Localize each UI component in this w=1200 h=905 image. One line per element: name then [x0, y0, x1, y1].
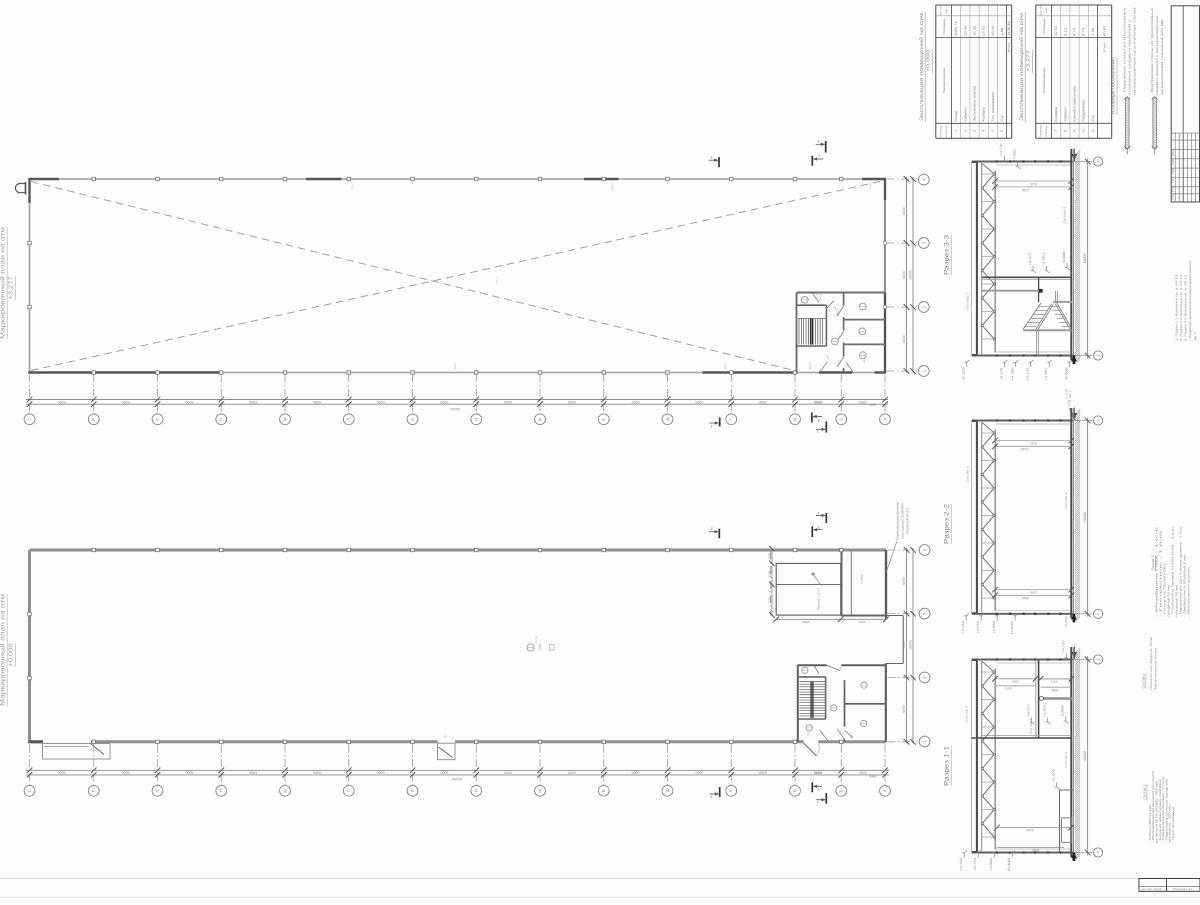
svg-text:2: 2 — [710, 155, 712, 159]
svg-text:1080.74: 1080.74 — [954, 21, 958, 36]
svg-text:6000: 6000 — [58, 771, 66, 775]
svg-text:1500: 1500 — [768, 552, 772, 559]
svg-text:+1.200: +1.200 — [1052, 769, 1056, 782]
svg-text:3: 3 — [818, 154, 820, 158]
svg-text:0.000: 0.000 — [1064, 615, 1068, 627]
svg-text:6000: 6000 — [504, 400, 512, 404]
svg-text:Кол-во: Кол-во — [1039, 5, 1042, 16]
svg-text:6000: 6000 — [759, 400, 767, 404]
svg-text:13.49: 13.49 — [991, 25, 995, 36]
svg-text:д-5: д-5 — [821, 731, 825, 736]
svg-text:Раздевалка: Раздевалка — [1082, 100, 1086, 121]
svg-text:д-2: д-2 — [806, 731, 810, 736]
svg-text:2150: 2150 — [768, 596, 772, 603]
svg-text:4471: 4471 — [1050, 680, 1057, 684]
svg-text:18000: 18000 — [1083, 751, 1087, 761]
svg-text:2298: 2298 — [1030, 590, 1038, 594]
svg-text:Р: Р — [91, 789, 96, 792]
svg-text:Дата: Дата — [1172, 149, 1175, 156]
svg-text:8.74: 8.74 — [1082, 27, 1086, 36]
svg-text:д-5: д-5 — [825, 354, 829, 359]
svg-text:6000: 6000 — [902, 335, 906, 343]
svg-text:11: 11 — [1091, 129, 1095, 133]
svg-text:д-3: д-3 — [815, 293, 819, 298]
svg-text:д-4: д-4 — [837, 359, 841, 364]
svg-text:1508: 1508 — [1051, 688, 1058, 692]
svg-text:6: 6 — [1000, 130, 1004, 132]
svg-text:Дн-2: Дн-2 — [453, 362, 457, 369]
svg-text:Д: Д — [665, 418, 670, 421]
svg-text:Комната персонала: Комната персонала — [1073, 86, 1077, 122]
svg-text:Маркировочный план на отм: Маркировочный план на отм — [0, 227, 7, 339]
svg-text:6575: 6575 — [1004, 686, 1011, 690]
svg-text:-0.006: -0.006 — [1065, 367, 1069, 380]
svg-text:Состав 3: Состав 3 — [965, 706, 969, 722]
svg-text:С/у: С/у — [1000, 115, 1004, 122]
svg-text:8: 8 — [1063, 130, 1067, 132]
svg-text:д-4: д-4 — [837, 308, 841, 313]
svg-text:18000: 18000 — [1083, 512, 1087, 522]
svg-text:д-5: д-5 — [838, 730, 842, 735]
svg-text:6000: 6000 — [313, 400, 321, 404]
svg-text:+4.770: +4.770 — [976, 621, 980, 634]
svg-text:9.12: 9.12 — [1063, 27, 1067, 36]
svg-text:+4.580: +4.580 — [989, 858, 993, 871]
svg-text:Коридор: Коридор — [982, 107, 986, 122]
svg-text:4. Спецификация заполнения око: 4. Спецификация заполнения оконных и две… — [1188, 261, 1192, 341]
svg-text:Е: Е — [601, 418, 606, 421]
svg-text:6000: 6000 — [902, 705, 906, 713]
svg-text:- Металлические прогоны: - Металлические прогоны — [1186, 567, 1190, 617]
svg-text:Система 1: Система 1 — [1063, 206, 1067, 223]
svg-text:6000: 6000 — [504, 771, 512, 775]
svg-text:18000: 18000 — [1083, 254, 1087, 264]
svg-text:Вр-1: Вр-1 — [495, 277, 499, 284]
svg-text:- Наружные стены из трехслойны: - Наружные стены из трехслойных — [1123, 7, 1127, 96]
svg-text:В: В — [793, 418, 798, 421]
svg-text:3: 3 — [818, 418, 820, 422]
svg-text:- Внутренние стены из трехслой: - Внутренние стены из трехслойных — [1150, 7, 1154, 96]
svg-text:Итого: Итого — [1007, 42, 1011, 52]
svg-text:13.49: 13.49 — [963, 25, 967, 36]
svg-text:6000: 6000 — [122, 400, 130, 404]
svg-text:Кол: Кол — [1172, 185, 1175, 192]
svg-text:Б: Б — [839, 418, 844, 421]
svg-text:6000: 6000 — [632, 771, 640, 775]
svg-text:С: С — [27, 418, 32, 421]
svg-text:+0.000: +0.000 — [926, 50, 932, 72]
svg-text:4000: 4000 — [814, 771, 822, 775]
svg-text:Склад: Склад — [954, 111, 958, 122]
svg-text:+3.277: +3.277 — [8, 276, 15, 300]
svg-text:наполнителем толщиной 100 мм: наполнителем толщиной 100 мм — [1160, 20, 1164, 96]
svg-text:- Грунт основания: - Грунт основания — [1171, 806, 1175, 843]
svg-text:Д: Д — [665, 789, 670, 792]
svg-text:0.000: 0.000 — [1061, 705, 1065, 716]
svg-text:+0.000: +0.000 — [8, 643, 15, 667]
svg-text:3. Разрез 3-3 Выполнен см. л.: 3. Разрез 3-3 Выполнен см. л. АР-13 — [1184, 275, 1188, 341]
svg-text:Герметизация проема: Герметизация проема — [896, 502, 900, 540]
svg-text:шт.: шт. — [945, 7, 948, 14]
svg-text:1-1: 1-1 — [834, 668, 838, 673]
svg-text:9: 9 — [1073, 130, 1077, 132]
svg-text:Кабинет: Кабинет — [963, 106, 967, 121]
svg-text:П: П — [155, 418, 160, 421]
svg-text:Люк-лаз 1.1х1.1: Люк-лаз 1.1х1.1 — [817, 588, 821, 610]
svg-text:2: 2 — [710, 424, 712, 428]
svg-text:6000: 6000 — [902, 271, 906, 279]
svg-text:Площадь: Площадь — [942, 18, 946, 36]
svg-text:- Металлическая балка: - Металлическая балка — [1153, 648, 1157, 692]
svg-text:С: С — [27, 789, 32, 792]
svg-text:2: 2 — [710, 794, 712, 798]
svg-text:Условные обозначения: Условные обозначения — [1111, 57, 1117, 115]
svg-text:Итого: Итого — [1103, 42, 1107, 52]
svg-text:М: М — [283, 417, 288, 421]
svg-text:6000: 6000 — [440, 400, 448, 404]
svg-text:7560: 7560 — [1012, 680, 1019, 684]
svg-text:7: 7 — [1054, 130, 1058, 132]
svg-text:д-4: д-4 — [837, 333, 841, 338]
svg-text:4: 4 — [982, 130, 986, 132]
svg-text:+4.500: +4.500 — [1013, 149, 1017, 161]
svg-text:Состав 5: Состав 5 — [1064, 752, 1068, 768]
svg-text:Б: Б — [839, 789, 844, 792]
svg-text:3549: 3549 — [1030, 182, 1038, 186]
svg-text:6000: 6000 — [802, 620, 809, 624]
svg-text:2000: 2000 — [768, 570, 772, 577]
svg-text:10: 10 — [1082, 129, 1086, 133]
svg-text:1. Разрез 1-1 Выполнен см. л.: 1. Разрез 1-1 Выполнен см. л. АР-13 — [1174, 275, 1178, 341]
svg-text:3: 3 — [817, 525, 819, 529]
svg-text:6000: 6000 — [58, 400, 66, 404]
svg-text:до der воля: до der воля — [1142, 887, 1162, 891]
svg-text:Лестничная клетка: Лестничная клетка — [973, 86, 977, 122]
svg-text:6000: 6000 — [902, 577, 906, 585]
svg-text:М: М — [283, 789, 288, 793]
svg-text:Номер: Номер — [1039, 124, 1042, 137]
svg-text:6000: 6000 — [377, 400, 385, 404]
svg-text:6000: 6000 — [568, 771, 576, 775]
svg-text:Формат А1: Формат А1 — [1173, 887, 1193, 891]
svg-text:Дн-4: Дн-4 — [862, 355, 866, 362]
svg-text:Состав 2: Состав 2 — [1141, 673, 1145, 688]
svg-text:80000: 80000 — [450, 407, 460, 411]
svg-text:Nдок: Nдок — [1172, 167, 1175, 174]
svg-text:5: 5 — [991, 130, 995, 132]
svg-text:Е: Е — [601, 789, 606, 792]
svg-text:К: К — [410, 418, 415, 421]
svg-text:6000: 6000 — [902, 207, 906, 215]
svg-text:9128: 9128 — [1021, 447, 1029, 451]
svg-text:18000: 18000 — [909, 640, 913, 650]
svg-text:+0.176: +0.176 — [1000, 367, 1004, 380]
svg-text:+4.770: +4.770 — [973, 858, 977, 871]
svg-text:8000: 8000 — [869, 403, 876, 407]
svg-text:Состав 1: Состав 1 — [1064, 492, 1068, 508]
svg-text:+4.770: +4.770 — [1068, 400, 1072, 412]
svg-text:2: 2 — [963, 130, 967, 132]
svg-text:40.62: 40.62 — [1103, 25, 1107, 36]
svg-text:2298: 2298 — [1022, 188, 1030, 192]
svg-text:+1.651: +1.651 — [1043, 704, 1047, 717]
svg-text:Дн-2: Дн-2 — [610, 183, 614, 190]
svg-text:А: А — [883, 789, 888, 792]
svg-text:С/у: С/у — [1091, 115, 1095, 122]
svg-text:4000: 4000 — [859, 771, 867, 775]
svg-text:1436.39: 1436.39 — [1007, 21, 1011, 36]
svg-text:Дн-2: Дн-2 — [723, 362, 727, 369]
svg-text:Площадь: Площадь — [1042, 18, 1046, 36]
svg-text:см. л.: см. л. — [1193, 331, 1197, 341]
svg-text:д-1: д-1 — [443, 733, 447, 738]
svg-text:Тех. помещение: Тех. помещение — [991, 92, 995, 122]
svg-text:Разрез 2-2: Разрез 2-2 — [944, 504, 951, 544]
svg-text:2: 2 — [711, 527, 713, 531]
svg-text:А: А — [883, 418, 888, 421]
svg-text:80000: 80000 — [452, 777, 462, 781]
svg-text:СТ300: СТ300 — [860, 574, 864, 584]
svg-text:2500х3400 (h): 2500х3400 (h) — [906, 508, 910, 534]
svg-text:6000: 6000 — [377, 771, 385, 775]
svg-text:Л: Л — [346, 789, 351, 792]
svg-text:Разрез 1-1: Разрез 1-1 — [944, 746, 951, 786]
svg-text:6000: 6000 — [249, 400, 257, 404]
svg-text:3560: 3560 — [1032, 848, 1040, 852]
svg-text:6000: 6000 — [632, 400, 640, 404]
svg-text:6000: 6000 — [185, 771, 193, 775]
svg-text:Разрез 3-3: Разрез 3-3 — [944, 235, 951, 275]
svg-text:Экспликация помещений на отм: Экспликация помещений на отм — [919, 12, 925, 121]
svg-text:Н: Н — [219, 418, 224, 421]
svg-text:Лист: Лист — [1172, 176, 1175, 183]
svg-text:0.000: 0.000 — [1007, 858, 1011, 871]
svg-text:Система 3: Система 3 — [966, 293, 970, 310]
svg-text:+4.770: +4.770 — [999, 143, 1003, 155]
svg-text:Подп: Подп — [1172, 158, 1175, 165]
svg-text:4000: 4000 — [814, 400, 822, 404]
svg-text:3: 3 — [973, 130, 977, 132]
svg-text:8.74: 8.74 — [1073, 27, 1077, 36]
svg-text:стеновых сэндвич-панелей с: стеновых сэндвич-панелей с — [1128, 19, 1132, 96]
svg-text:+4.140: +4.140 — [959, 858, 963, 871]
svg-text:сэндвич-панелей с минераловатн: сэндвич-панелей с минераловатным — [1155, 16, 1159, 96]
svg-text:Изм: Изм — [1172, 193, 1175, 199]
svg-text:+3.111: +3.111 — [1026, 367, 1030, 380]
svg-text:6111: 6111 — [1030, 441, 1037, 445]
svg-text:Кол-во: Кол-во — [939, 5, 942, 16]
svg-text:И: И — [474, 418, 479, 421]
svg-text:6000: 6000 — [185, 400, 193, 404]
svg-text:Номер: Номер — [939, 124, 942, 137]
svg-text:Ж: Ж — [538, 417, 543, 421]
svg-text:+3.277: +3.277 — [1027, 704, 1031, 717]
svg-text:Экспликация помещений на отм: Экспликация помещений на отм — [1019, 12, 1025, 121]
svg-text:Состав 1: Состав 1 — [1142, 784, 1146, 799]
svg-text:2. Разрез 2-2 Выполнен см. л.: 2. Разрез 2-2 Выполнен см. л. АР-13 — [1179, 275, 1183, 341]
svg-text:6000: 6000 — [902, 641, 906, 649]
svg-text:+4.770: +4.770 — [1062, 640, 1066, 652]
svg-text:+3.277: +3.277 — [1026, 50, 1032, 72]
svg-text:Л: Л — [346, 418, 351, 421]
svg-text:6000: 6000 — [440, 771, 448, 775]
svg-text:6000: 6000 — [313, 771, 321, 775]
svg-text:1: 1 — [817, 800, 819, 804]
svg-text:Дн-2: Дн-2 — [350, 182, 354, 189]
svg-text:+1.557: +1.557 — [1044, 367, 1048, 380]
svg-text:Р: Р — [91, 418, 96, 421]
svg-text:1.58: 1.58 — [1000, 27, 1004, 36]
svg-text:6000: 6000 — [122, 771, 130, 775]
svg-text:4000: 4000 — [858, 620, 865, 624]
svg-text:6000: 6000 — [568, 400, 576, 404]
svg-text:(монтажная) АЛЮТЕХ: (монтажная) АЛЮТЕХ — [901, 503, 905, 539]
svg-text:+4.140: +4.140 — [961, 621, 965, 634]
svg-text:Кабинет: Кабинет — [1063, 106, 1067, 121]
svg-text:Наименование: Наименование — [942, 67, 946, 93]
svg-text:1: 1 — [817, 140, 819, 144]
svg-text:К: К — [410, 789, 415, 792]
svg-text:- Сборные ж/б плиты перекрытия: - Сборные ж/б плиты перекрытия - 220 мм — [1149, 637, 1153, 692]
svg-text:1.58: 1.58 — [1091, 27, 1095, 36]
svg-text:Состав 3: Состав 3 — [965, 466, 969, 482]
svg-text:2240: 2240 — [1026, 828, 1034, 832]
svg-text:1: 1 — [954, 130, 958, 132]
svg-text:Дн-1: Дн-1 — [868, 182, 872, 189]
svg-text:18000: 18000 — [909, 270, 913, 280]
svg-text:Наименование: Наименование — [1042, 67, 1046, 93]
svg-text:Склад: Склад — [534, 635, 538, 644]
svg-text:30.1: 30.1 — [1068, 390, 1072, 399]
svg-text:3549: 3549 — [1022, 596, 1030, 600]
svg-text:12.52: 12.52 — [982, 25, 986, 36]
svg-text:Н: Н — [219, 789, 224, 792]
svg-text:помещ.: помещ. — [1045, 124, 1048, 136]
svg-text:шт.: шт. — [1045, 7, 1048, 14]
svg-text:Маркировочный план на отм: Маркировочный план на отм — [0, 594, 7, 706]
svg-text:В: В — [793, 789, 798, 792]
svg-text:Состав 2: Состав 2 — [1029, 718, 1033, 734]
svg-text:3: 3 — [817, 788, 819, 792]
svg-text:-0.150: -0.150 — [962, 367, 966, 380]
svg-text:8000: 8000 — [869, 774, 876, 778]
svg-text:1: 1 — [817, 511, 819, 515]
svg-text:16.26: 16.26 — [973, 25, 977, 36]
svg-text:И: И — [474, 789, 479, 792]
svg-text:Коридор: Коридор — [1054, 107, 1058, 122]
svg-text:Дн-4: Дн-4 — [849, 731, 853, 738]
svg-text:минераловатным наполнителем 12: минераловатным наполнителем 120 мм — [1133, 8, 1137, 96]
svg-text:6000: 6000 — [695, 400, 703, 404]
svg-text:0.000: 0.000 — [1062, 251, 1066, 262]
svg-text:0.000: 0.000 — [1010, 621, 1014, 634]
svg-text:П: П — [155, 789, 160, 792]
svg-text:6000: 6000 — [759, 771, 767, 775]
svg-text:помещ.: помещ. — [945, 124, 948, 136]
svg-text:Ж: Ж — [538, 789, 543, 793]
svg-text:1080: 1080 — [538, 643, 542, 651]
svg-text:-1.051: -1.051 — [1042, 252, 1046, 265]
svg-text:12.52: 12.52 — [1054, 25, 1058, 36]
svg-text:6000: 6000 — [695, 771, 703, 775]
svg-text:+4.580: +4.580 — [992, 621, 996, 634]
svg-text:6000: 6000 — [249, 771, 257, 775]
svg-text:Дн-4: Дн-4 — [808, 362, 812, 369]
svg-text:1: 1 — [817, 430, 819, 434]
svg-text:+4.580: +4.580 — [1011, 367, 1015, 380]
svg-text:д-6: д-6 — [844, 362, 848, 367]
svg-text:+3.277: +3.277 — [1028, 252, 1032, 265]
svg-text:4000: 4000 — [859, 400, 867, 404]
